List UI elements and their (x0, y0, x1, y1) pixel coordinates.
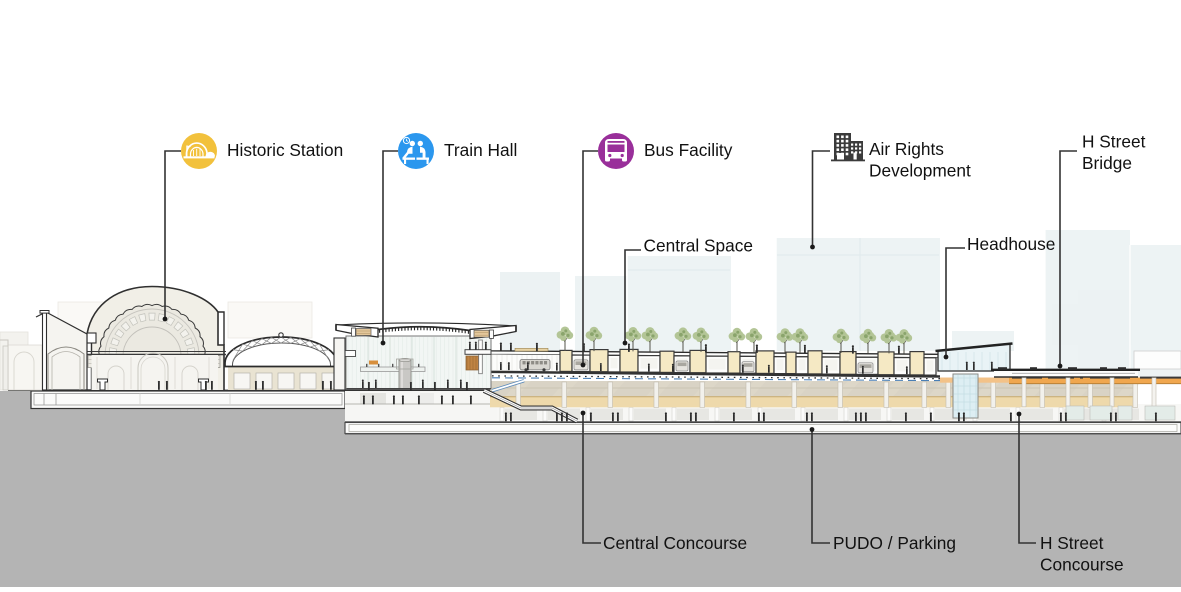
svg-text:Development: Development (869, 161, 971, 181)
svg-text:Central Concourse: Central Concourse (603, 533, 747, 553)
svg-text:Train Hall: Train Hall (444, 140, 517, 160)
svg-text:H Street: H Street (1040, 533, 1104, 553)
svg-text:H Street: H Street (1082, 132, 1146, 152)
svg-text:Air Rights: Air Rights (869, 139, 944, 159)
svg-text:Headhouse: Headhouse (967, 234, 1055, 254)
svg-text:Central Space: Central Space (644, 236, 754, 256)
svg-text:PUDO / Parking: PUDO / Parking (833, 533, 956, 553)
svg-text:Historic Station: Historic Station (227, 140, 343, 160)
svg-text:Bridge: Bridge (1082, 153, 1132, 173)
svg-text:Bus Facility: Bus Facility (644, 140, 733, 160)
svg-text:Concourse: Concourse (1040, 555, 1124, 575)
